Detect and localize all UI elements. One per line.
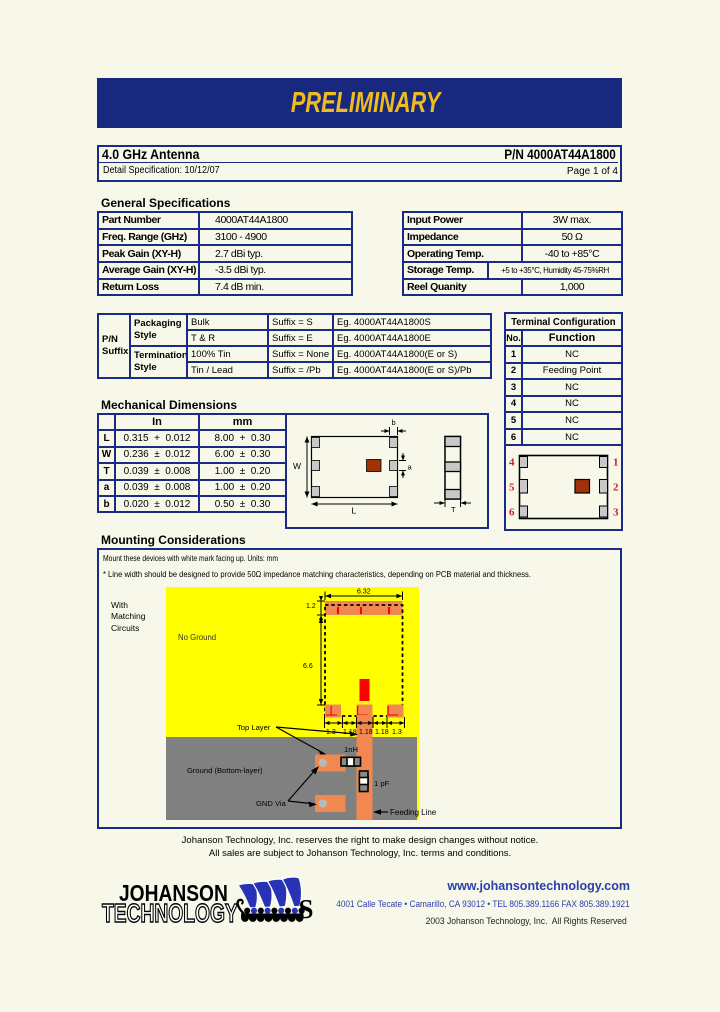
svg-text:L: L <box>352 506 357 516</box>
svg-text:1.18: 1.18 <box>359 729 373 736</box>
svg-text:a: a <box>408 463 413 472</box>
svg-text:2: 2 <box>613 482 619 494</box>
svg-text:1.2: 1.2 <box>306 603 316 610</box>
svg-text:1: 1 <box>613 457 619 469</box>
svg-text:1nH: 1nH <box>344 745 358 754</box>
svg-text:6: 6 <box>509 507 515 519</box>
svg-text:4: 4 <box>509 457 515 469</box>
svg-text:3: 3 <box>613 507 619 519</box>
svg-text:W: W <box>293 461 301 471</box>
svg-text:b: b <box>392 418 396 427</box>
svg-text:1.3: 1.3 <box>392 729 402 736</box>
svg-text:6.6: 6.6 <box>303 663 313 670</box>
svg-text:5: 5 <box>509 482 515 494</box>
svg-text:1 pF: 1 pF <box>374 779 390 788</box>
svg-text:Ground (Bottom-layer): Ground (Bottom-layer) <box>187 766 263 775</box>
svg-text:GND Via: GND Via <box>256 799 287 808</box>
svg-text:Top Layer: Top Layer <box>237 723 271 732</box>
svg-text:6.32: 6.32 <box>357 589 371 596</box>
svg-text:Feeding Line: Feeding Line <box>390 808 437 817</box>
svg-text:No Ground: No Ground <box>178 633 216 642</box>
svg-text:1.18: 1.18 <box>375 729 389 736</box>
svg-text:T: T <box>451 505 456 514</box>
